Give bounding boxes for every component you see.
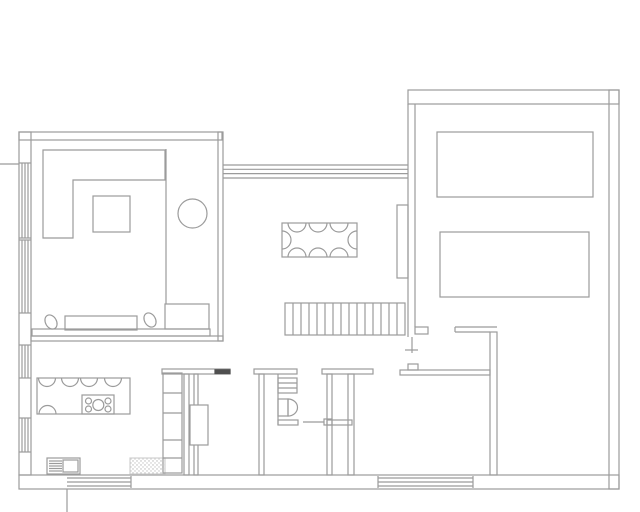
staircase — [285, 303, 405, 335]
left-wall-windows — [19, 163, 31, 452]
living-room-furniture — [32, 149, 210, 336]
wc-fixtures — [278, 378, 332, 425]
dining-set — [282, 223, 357, 257]
entry-steps — [67, 476, 473, 488]
mudroom-walls — [400, 327, 497, 475]
exterior-walls — [0, 90, 619, 512]
clerestory-window-band — [223, 165, 408, 178]
kitchen-island — [37, 378, 130, 414]
living-dining-wall — [218, 132, 223, 341]
floor-plan-canvas — [0, 0, 640, 512]
dining-sideboard — [397, 205, 408, 278]
living-kitchen-wall — [31, 336, 223, 341]
garage-furniture — [437, 132, 593, 297]
floor-plan-page — [0, 0, 640, 512]
